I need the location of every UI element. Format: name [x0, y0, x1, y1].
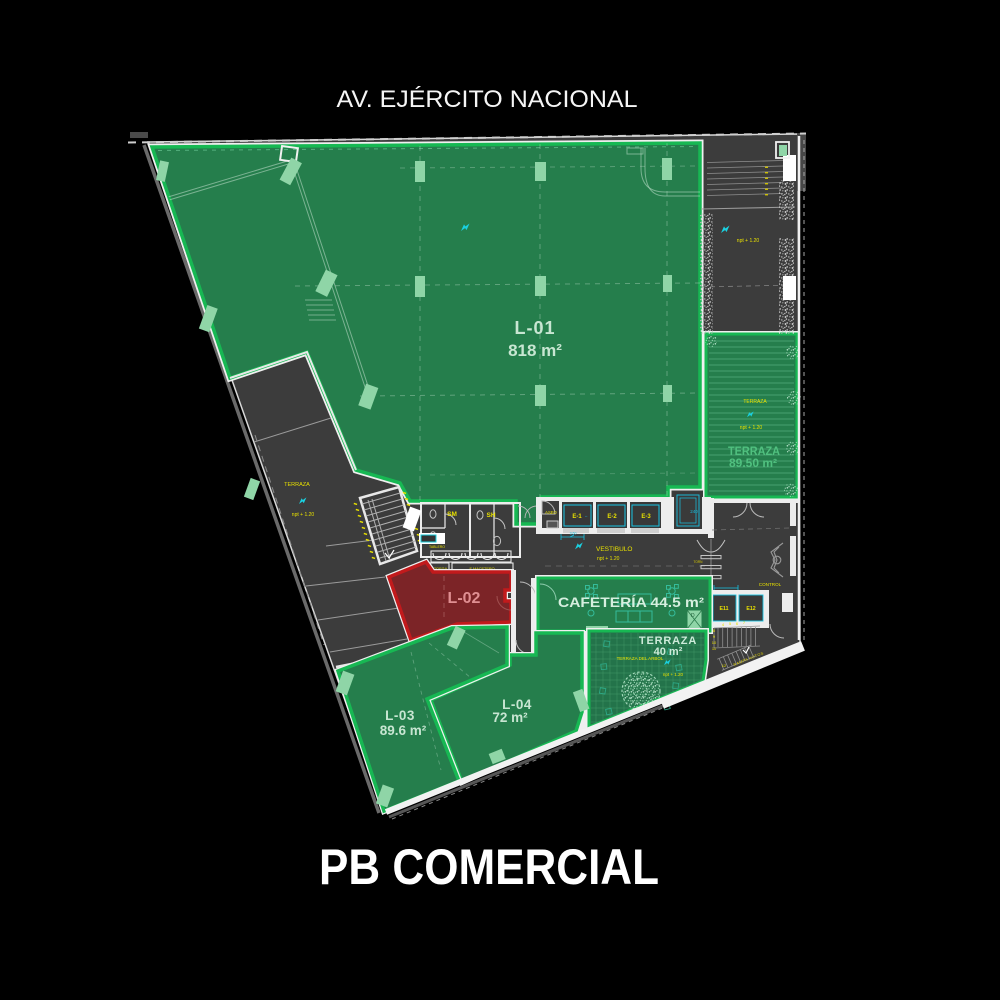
svg-text:3.60: 3.60 [570, 532, 577, 536]
svg-text:↔: ↔ [584, 513, 588, 518]
svg-text:TERRAZA: TERRAZA [743, 399, 767, 405]
svg-text:npt + 1.20: npt + 1.20 [740, 425, 763, 431]
svg-text:TABLERO: TABLERO [429, 545, 445, 549]
svg-text:E11: E11 [720, 606, 729, 612]
svg-text:E-3: E-3 [641, 514, 651, 520]
svg-text:PB COMERCIAL: PB COMERCIAL [319, 839, 659, 895]
svg-text:TERRAZA DEL ARBOL: TERRAZA DEL ARBOL [617, 656, 664, 661]
svg-text:D: D [691, 613, 695, 619]
svg-text:SM: SM [447, 511, 457, 518]
svg-text:12: 12 [722, 663, 727, 668]
svg-text:CAFETERÍA 44.5 m²: CAFETERÍA 44.5 m² [558, 595, 705, 610]
svg-text:E12: E12 [746, 606, 755, 612]
svg-text:818 m²: 818 m² [508, 341, 562, 360]
svg-text:VESTIBULO: VESTIBULO [596, 546, 632, 553]
svg-text:npt + 1.20: npt + 1.20 [737, 238, 760, 244]
svg-text:TORN: TORN [694, 560, 704, 564]
svg-text:npt + 1.20: npt + 1.20 [292, 512, 315, 518]
svg-text:89.50 m²: 89.50 m² [729, 456, 777, 470]
svg-text:E-2: E-2 [607, 514, 617, 520]
svg-text:10: 10 [712, 640, 717, 645]
svg-text:AV. EJÉRCITO NACIONAL: AV. EJÉRCITO NACIONAL [337, 86, 638, 113]
svg-text:L-01: L-01 [514, 318, 555, 338]
svg-text:L-03: L-03 [385, 708, 415, 723]
svg-text:npt + 1.20: npt + 1.20 [663, 672, 684, 677]
svg-text:E-1: E-1 [572, 514, 582, 520]
svg-text:CONTROL: CONTROL [759, 582, 782, 587]
svg-text:npt + 1.20: npt + 1.20 [597, 556, 620, 562]
svg-text:240: 240 [690, 509, 698, 514]
svg-text:SH: SH [486, 512, 495, 519]
svg-text:ASEO: ASEO [545, 510, 557, 515]
svg-text:TERRAZA: TERRAZA [284, 482, 310, 488]
svg-text:L-02: L-02 [448, 590, 481, 607]
svg-text:72 m²: 72 m² [492, 710, 528, 725]
svg-text:89.6 m²: 89.6 m² [380, 723, 427, 738]
